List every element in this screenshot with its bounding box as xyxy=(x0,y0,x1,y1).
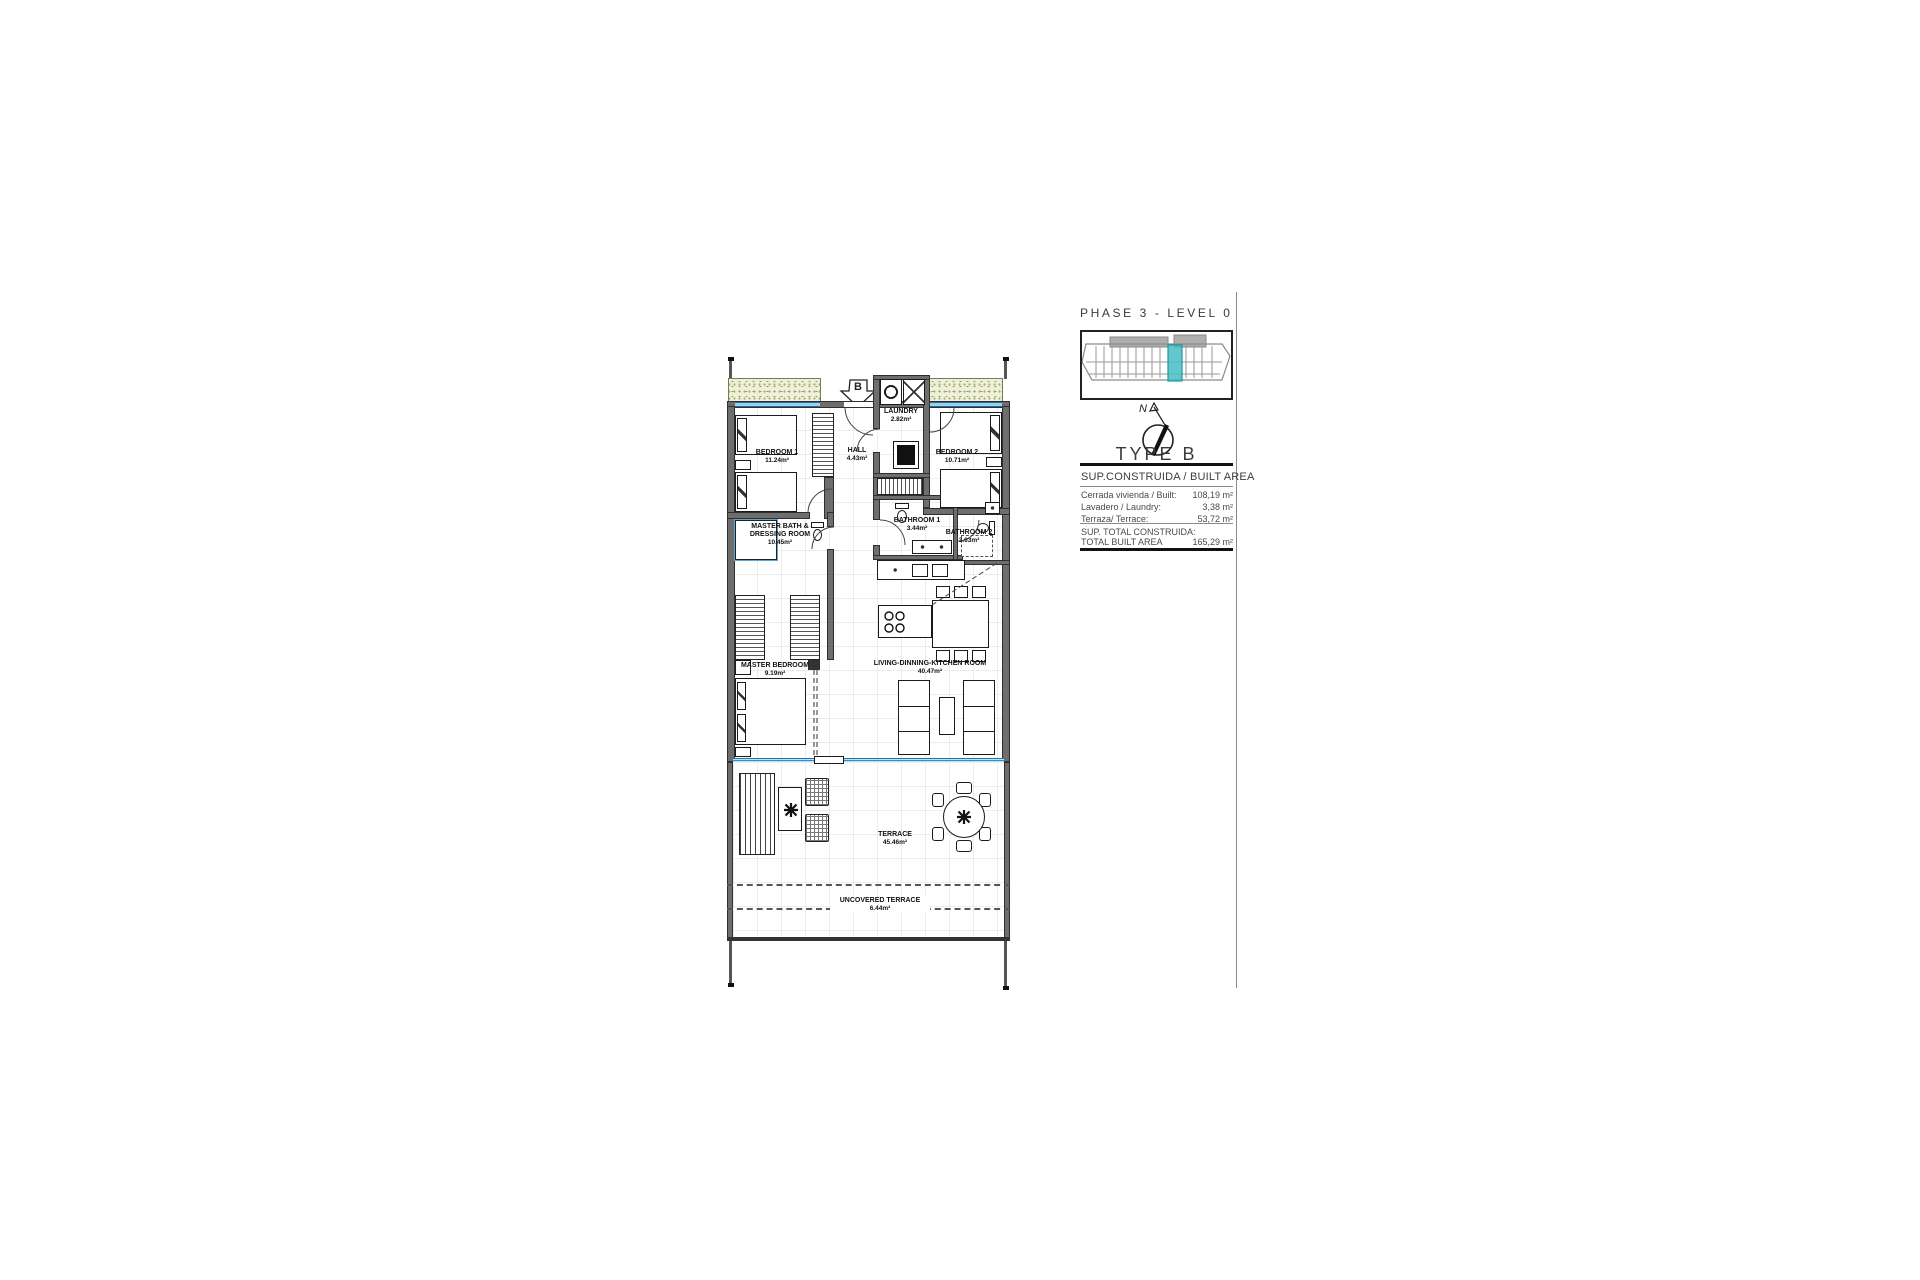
table-rule xyxy=(1080,486,1233,487)
room-area: 40.47m² xyxy=(860,668,1000,675)
room-area: 9.19m² xyxy=(735,670,815,677)
total-label: TOTAL BUILT AREA xyxy=(1081,537,1163,547)
area-table: Cerrada vivienda / Built: 108,19 m² Lava… xyxy=(1081,490,1233,524)
room-name: BATHROOM 2 xyxy=(946,529,993,536)
total-row-2: TOTAL BUILT AREA 165,29 m² xyxy=(1081,537,1233,547)
title-rule xyxy=(1080,463,1233,466)
table-rule xyxy=(1080,523,1233,524)
room-area: 4.43m² xyxy=(835,455,879,462)
master-bath-label: MASTER BATH & DRESSING ROOM 10.45m² xyxy=(745,523,815,547)
room-area: 2.82m² xyxy=(877,416,925,423)
type-title: TYPE B xyxy=(1080,444,1233,465)
laundry-label: LAUNDRY 2.82m² xyxy=(877,408,925,424)
bedroom1-label: BEDROOM 1 11.24m² xyxy=(745,449,809,465)
row-label: Lavadero / Laundry: xyxy=(1081,502,1161,512)
room-area: 11.24m² xyxy=(745,457,809,464)
page: { "title_block": { "phase_title": "PHASE… xyxy=(0,0,1920,1280)
room-name: DRESSING ROOM xyxy=(750,531,810,538)
room-name: TERRACE xyxy=(878,831,912,838)
table-row: Lavadero / Laundry: 3,38 m² xyxy=(1081,502,1233,512)
bedroom2-label: BEDROOM 2 10.71m² xyxy=(925,449,989,465)
unit-highlight xyxy=(1168,345,1182,381)
north-label: N xyxy=(1139,403,1147,415)
terrace-label: TERRACE 45.46m² xyxy=(865,831,925,847)
master-bedroom-label: MASTER BEDROOM 9.19m² xyxy=(735,662,815,678)
bathroom2-label: BATHROOM 2 3.63m² xyxy=(939,529,999,545)
room-name: UNCOVERED TERRACE xyxy=(840,897,921,904)
room-name: BEDROOM 1 xyxy=(756,449,798,456)
total-label: SUP. TOTAL CONSTRUIDA: xyxy=(1081,527,1196,537)
title-rule xyxy=(1080,548,1233,551)
room-name: BATHROOM 1 xyxy=(894,517,941,524)
room-name: LIVING-DINNING-KITCHEN ROOM xyxy=(874,660,986,667)
room-area: 10.71m² xyxy=(925,457,989,464)
hall-label: HALL 4.43m² xyxy=(835,447,879,463)
room-name: LAUNDRY xyxy=(884,408,918,415)
room-name: HALL xyxy=(848,447,867,454)
total-value: 165,29 m² xyxy=(1192,537,1233,547)
row-value: 3,38 m² xyxy=(1202,502,1233,512)
room-name: MASTER BEDROOM xyxy=(741,662,809,669)
table-row: Cerrada vivienda / Built: 108,19 m² xyxy=(1081,490,1233,500)
floor-plan: B xyxy=(727,357,1010,990)
site-plan-drawing xyxy=(1082,332,1231,398)
area-table-header: SUP.CONSTRUIDA / BUILT AREA xyxy=(1081,471,1234,483)
total-row-1: SUP. TOTAL CONSTRUIDA: xyxy=(1081,527,1233,537)
room-area: 3.63m² xyxy=(939,537,999,544)
room-area: 45.46m² xyxy=(865,839,925,846)
phase-title: PHASE 3 - LEVEL 0 xyxy=(1080,306,1235,320)
room-area: 6.44m² xyxy=(830,905,930,912)
row-value: 108,19 m² xyxy=(1192,490,1233,500)
uncovered-terrace-label: UNCOVERED TERRACE 6.44m² xyxy=(830,897,930,913)
living-label: LIVING-DINNING-KITCHEN ROOM 40.47m² xyxy=(860,660,1000,676)
room-area: 10.45m² xyxy=(745,539,815,546)
row-label: Cerrada vivienda / Built: xyxy=(1081,490,1177,500)
room-name: MASTER BATH & xyxy=(751,523,808,530)
sheet-divider-line xyxy=(1236,292,1237,988)
room-name: BEDROOM 2 xyxy=(936,449,978,456)
site-plan-thumbnail xyxy=(1080,330,1233,400)
